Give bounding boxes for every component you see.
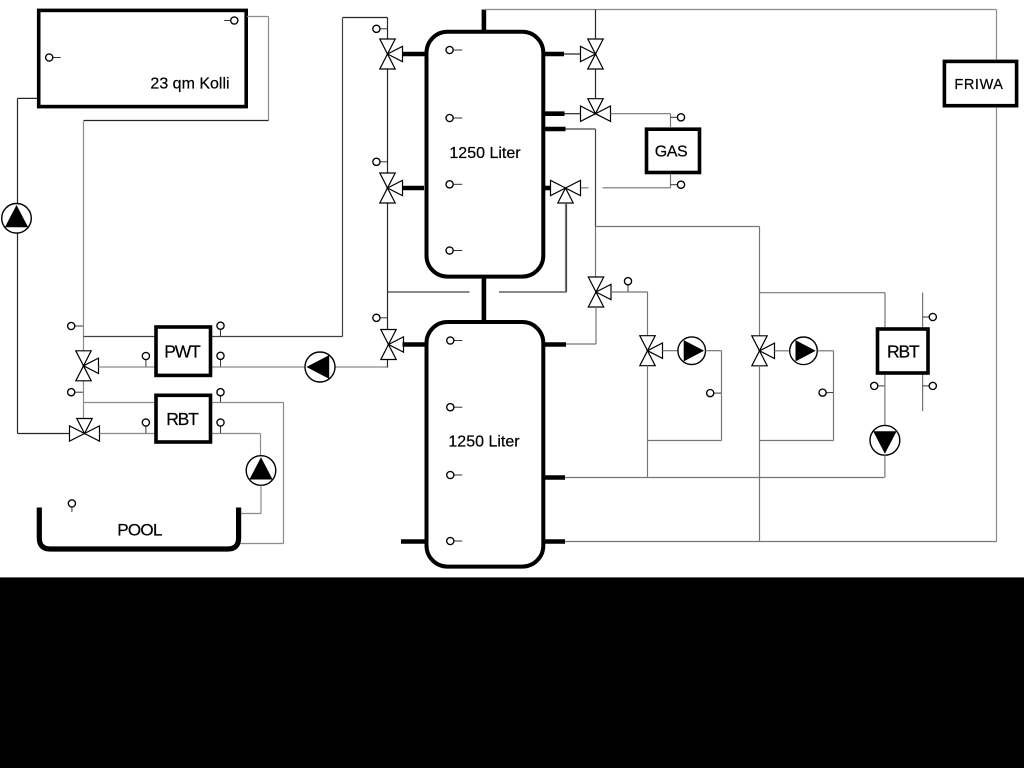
svg-text:POOL: POOL (117, 520, 162, 539)
svg-text:RBT: RBT (887, 341, 920, 361)
svg-text:RBT: RBT (166, 409, 199, 429)
svg-text:FRIWA: FRIWA (954, 77, 1003, 93)
svg-text:GAS: GAS (655, 144, 688, 161)
svg-text:23 qm Kolli: 23 qm Kolli (150, 76, 229, 93)
svg-text:1250 Liter: 1250 Liter (448, 433, 520, 450)
svg-text:1250 Liter: 1250 Liter (449, 145, 521, 162)
svg-text:PWT: PWT (164, 342, 201, 362)
